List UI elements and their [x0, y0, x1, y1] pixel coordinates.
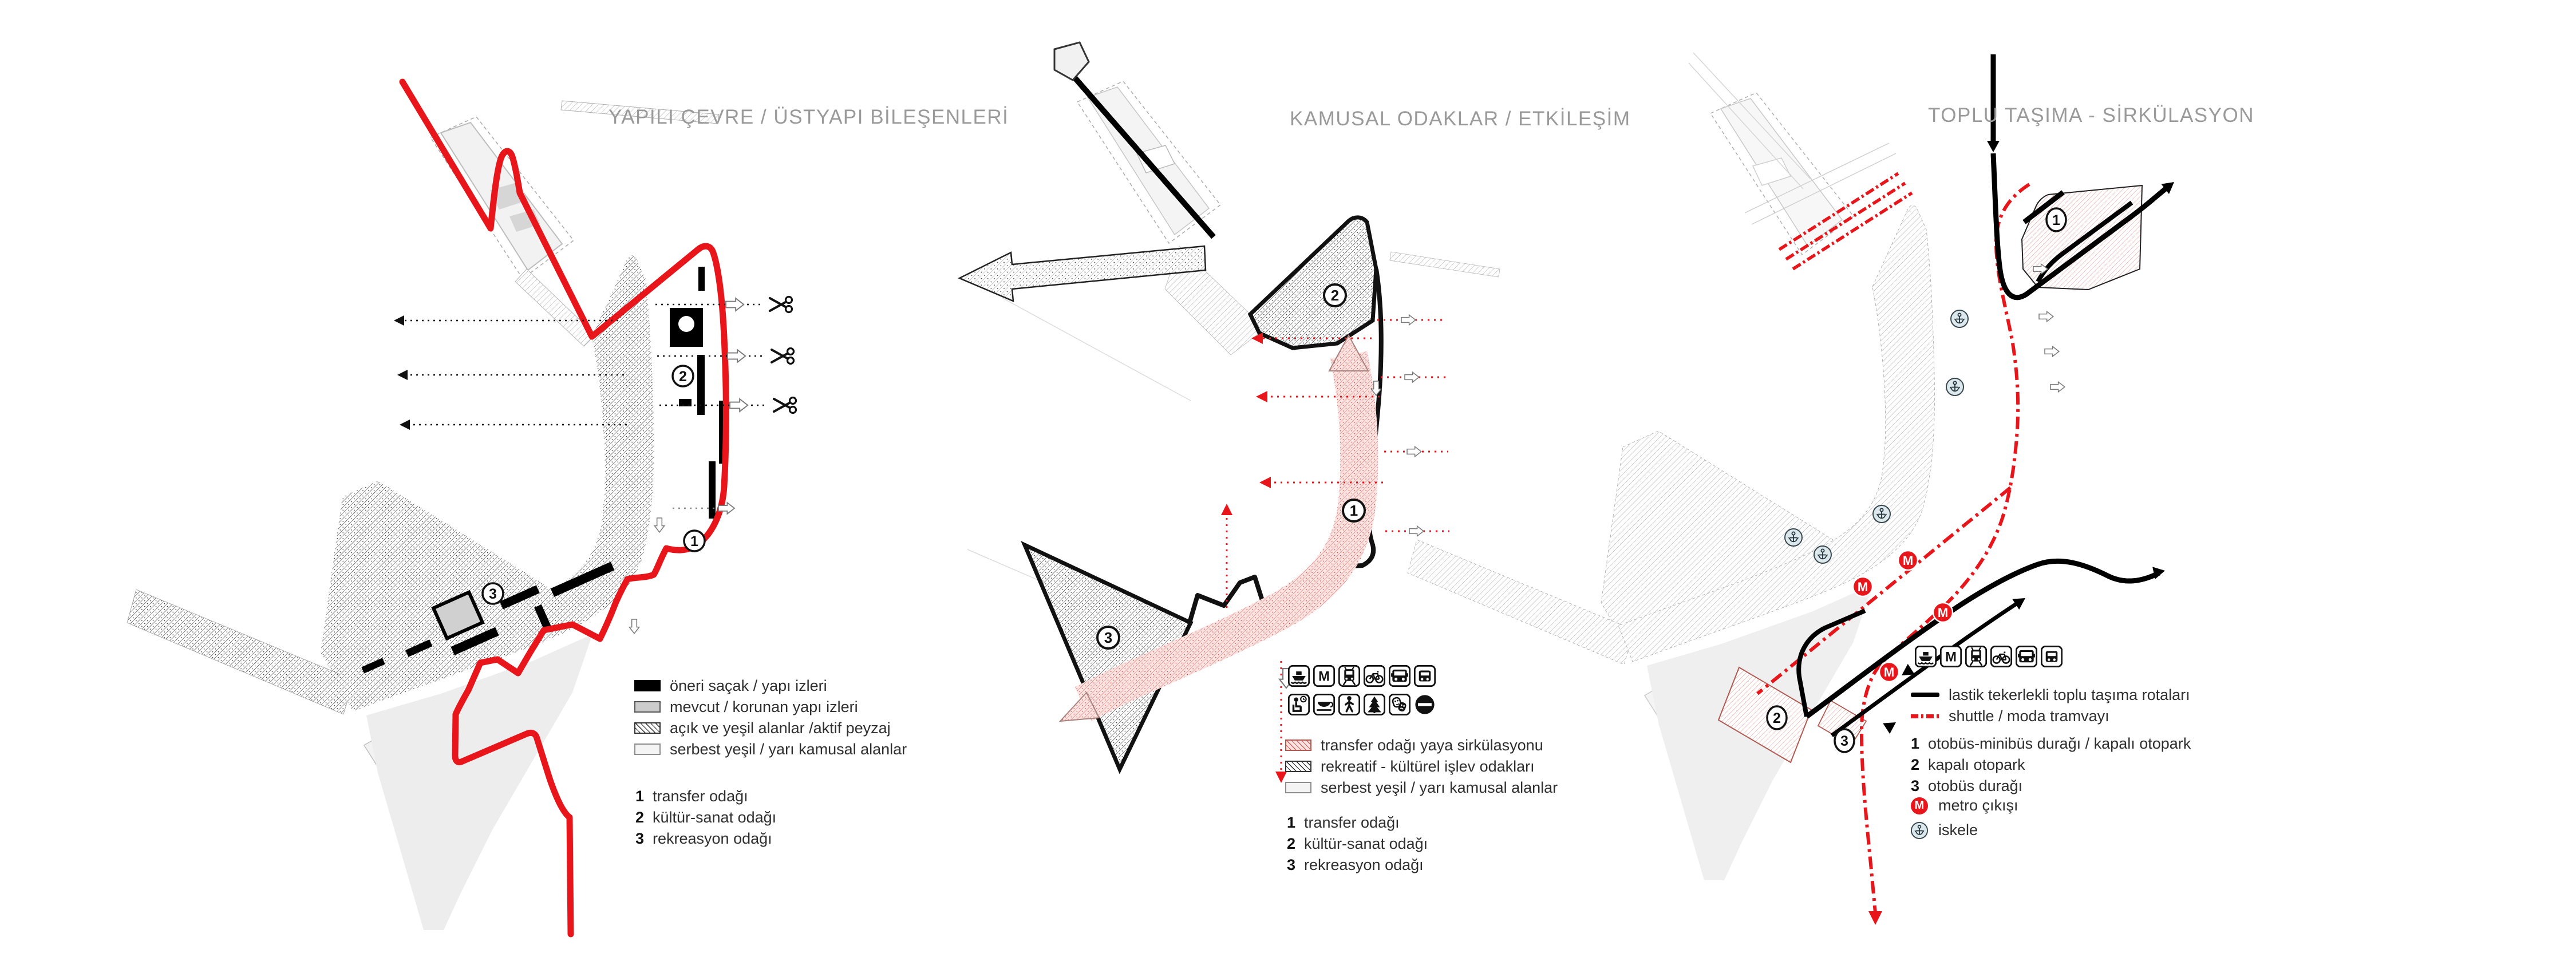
bicycle-icon — [1364, 665, 1385, 687]
numbered-item: 1 transfer odağı — [1287, 814, 1428, 832]
legend-row: mevcut / korunan yapı izleri — [634, 700, 907, 714]
item-number: 3 — [1287, 856, 1304, 874]
legend-row: serbest yeşil / yarı kamusal alanlar — [1285, 781, 1558, 794]
metro-m-2: M — [1858, 580, 1868, 594]
map3-label-1: 1 — [2052, 212, 2060, 228]
map2-label-2: 2 — [1331, 287, 1339, 304]
map2-label-1: 1 — [1350, 502, 1358, 519]
map3-label-3: 3 — [1840, 733, 1848, 749]
panel3-title: TOPLU TAŞIMA - SİRKÜLASYON — [1928, 104, 2254, 127]
legend-label: serbest yeşil / yarı kamusal alanlar — [1321, 779, 1558, 797]
numbered-item: 3 rekreasyon odağı — [1287, 856, 1428, 874]
swatch-transfer-circulation — [1285, 739, 1311, 751]
numbered-item: 3 otobüs durağı — [1911, 777, 2191, 795]
symbol-legend-3: M metro çıkışı iskele — [1911, 797, 2018, 846]
minibus-icon — [1414, 665, 1436, 687]
swatch-existing-buildings — [634, 701, 661, 713]
pier-anchor-icon — [1911, 822, 1928, 839]
item-label: kapalı otopark — [1928, 756, 2025, 774]
map1-label-2: 2 — [679, 369, 687, 385]
item-number: 1 — [1287, 814, 1304, 832]
legend-row: transfer odağı yaya sirkülasyonu — [1285, 738, 1558, 752]
item-label: otobüs durağı — [1928, 777, 2022, 795]
bus-icon — [2016, 646, 2037, 667]
legend-row: lastik tekerlekli toplu taşıma rotaları — [1911, 688, 2190, 702]
theater-icon — [1389, 694, 1411, 715]
legend-row: shuttle / moda tramvayı — [1911, 709, 2190, 723]
icon-row-1 — [1288, 665, 1436, 687]
panel2-title: KAMUSAL ODAKLAR / ETKİLEŞİM — [1290, 108, 1630, 130]
map1-label-1: 1 — [690, 533, 698, 549]
swatch-proposed-canopy — [634, 680, 661, 691]
mode-icon-row-3 — [1915, 646, 2063, 674]
map3-label-2: 2 — [1773, 710, 1781, 726]
numbered-item: 1 transfer odağı — [635, 788, 776, 805]
item-label: transfer odağı — [1304, 814, 1400, 832]
legend-label: rekreatif - kültürel işlev odakları — [1321, 758, 1535, 776]
no-entry-icon — [1414, 694, 1436, 715]
pedestrian-icon — [1338, 694, 1360, 715]
numbered-item: 3 rekreasyon odağı — [635, 830, 776, 848]
metro-m-3: M — [1938, 606, 1948, 620]
item-number: 3 — [635, 830, 653, 848]
swatch-cultural-focus — [1285, 761, 1311, 772]
legend-label: açık ve yeşil alanlar /aktif peyzaj — [670, 719, 891, 737]
item-label: rekreasyon odağı — [653, 830, 772, 848]
item-label: kültür-sanat odağı — [1304, 835, 1428, 853]
legend-label: mevcut / korunan yapı izleri — [670, 698, 858, 716]
zone-culture — [1250, 217, 1376, 348]
ferry-icon — [1915, 646, 1937, 667]
legend-label: öneri saçak / yapı izleri — [670, 677, 827, 695]
waiting-icon — [1288, 694, 1310, 715]
pier-edge-line — [1066, 68, 1214, 237]
legend-label: shuttle / moda tramvayı — [1949, 707, 2109, 725]
item-number: 2 — [1911, 756, 1928, 774]
symbol-label: metro çıkışı — [1938, 797, 2018, 814]
symbol-item: M metro çıkışı — [1911, 797, 2018, 814]
symbol-label: iskele — [1938, 821, 1978, 839]
numbered-item: 2 kapalı otopark — [1911, 756, 2191, 774]
park-icon — [1364, 694, 1385, 715]
metro-exit-icon: M — [1911, 797, 1928, 814]
ferry-icon — [1288, 665, 1310, 687]
numbered-item: 1 otobüs-minibüs durağı / kapalı otopark — [1911, 735, 2191, 753]
swatch-shuttle-line — [1911, 714, 1939, 718]
map2-label-3: 3 — [1104, 629, 1112, 646]
diagram-sheet: M — [0, 0, 2576, 965]
item-number: 3 — [1911, 777, 1928, 795]
numbered-item: 2 kültür-sanat odağı — [635, 809, 776, 826]
item-label: transfer odağı — [653, 788, 748, 805]
mode-icon-grid — [1288, 665, 1436, 722]
breakwater-blob — [1054, 42, 1089, 80]
cafe-icon — [1313, 694, 1335, 715]
legend-row: öneri saçak / yapı izleri — [634, 679, 907, 693]
swatch-free-green — [634, 743, 661, 755]
legend-built-environment: öneri saçak / yapı izleri mevcut / korun… — [634, 679, 907, 764]
numbered-list-3: 1 otobüs-minibüs durağı / kapalı otopark… — [1911, 735, 2191, 798]
legend-row: rekreatif - kültürel işlev odakları — [1285, 760, 1558, 773]
legend-row: açık ve yeşil alanlar /aktif peyzaj — [634, 721, 907, 735]
tram-icon — [1338, 665, 1360, 687]
numbered-item: 2 kültür-sanat odağı — [1287, 835, 1428, 853]
icon-row-2 — [1288, 694, 1436, 715]
item-number: 2 — [635, 809, 653, 826]
bus-icon — [1389, 665, 1411, 687]
metro-m-1: M — [1903, 553, 1913, 568]
legend-public-focuses: transfer odağı yaya sirkülasyonu rekreat… — [1285, 738, 1558, 802]
legend-label: lastik tekerlekli toplu taşıma rotaları — [1949, 686, 2190, 704]
item-number: 1 — [1911, 735, 1928, 753]
metro-icon — [1940, 646, 1962, 667]
item-label: kültür-sanat odağı — [653, 809, 776, 826]
panel1-title: YAPILI ÇEVRE / ÜSTYAPI BİLEŞENLERİ — [609, 106, 1009, 129]
minibus-icon — [2041, 646, 2063, 667]
tram-icon — [1965, 646, 1987, 667]
metro-icon — [1313, 665, 1335, 687]
swatch-free-green — [1285, 782, 1311, 793]
legend-label: serbest yeşil / yarı kamusal alanlar — [670, 741, 907, 758]
legend-row: serbest yeşil / yarı kamusal alanlar — [634, 742, 907, 756]
item-number: 1 — [635, 788, 653, 805]
map1-label-3: 3 — [489, 586, 497, 602]
legend-label: transfer odağı yaya sirkülasyonu — [1321, 737, 1543, 754]
metro-m-4: M — [1884, 665, 1894, 679]
icon-row — [1915, 646, 2063, 667]
bicycle-icon — [1990, 646, 2012, 667]
numbered-list-2: 1 transfer odağı 2 kültür-sanat odağı 3 … — [1287, 814, 1428, 877]
item-number: 2 — [1287, 835, 1304, 853]
item-label: rekreasyon odağı — [1304, 856, 1424, 874]
symbol-item: iskele — [1911, 821, 2018, 839]
numbered-list-1: 1 transfer odağı 2 kültür-sanat odağı 3 … — [635, 788, 776, 851]
swatch-bus-route-line — [1911, 693, 1939, 697]
legend-transport-lines: lastik tekerlekli toplu taşıma rotaları … — [1911, 688, 2190, 730]
swatch-open-green — [634, 722, 661, 734]
item-label: otobüs-minibüs durağı / kapalı otopark — [1928, 735, 2191, 753]
